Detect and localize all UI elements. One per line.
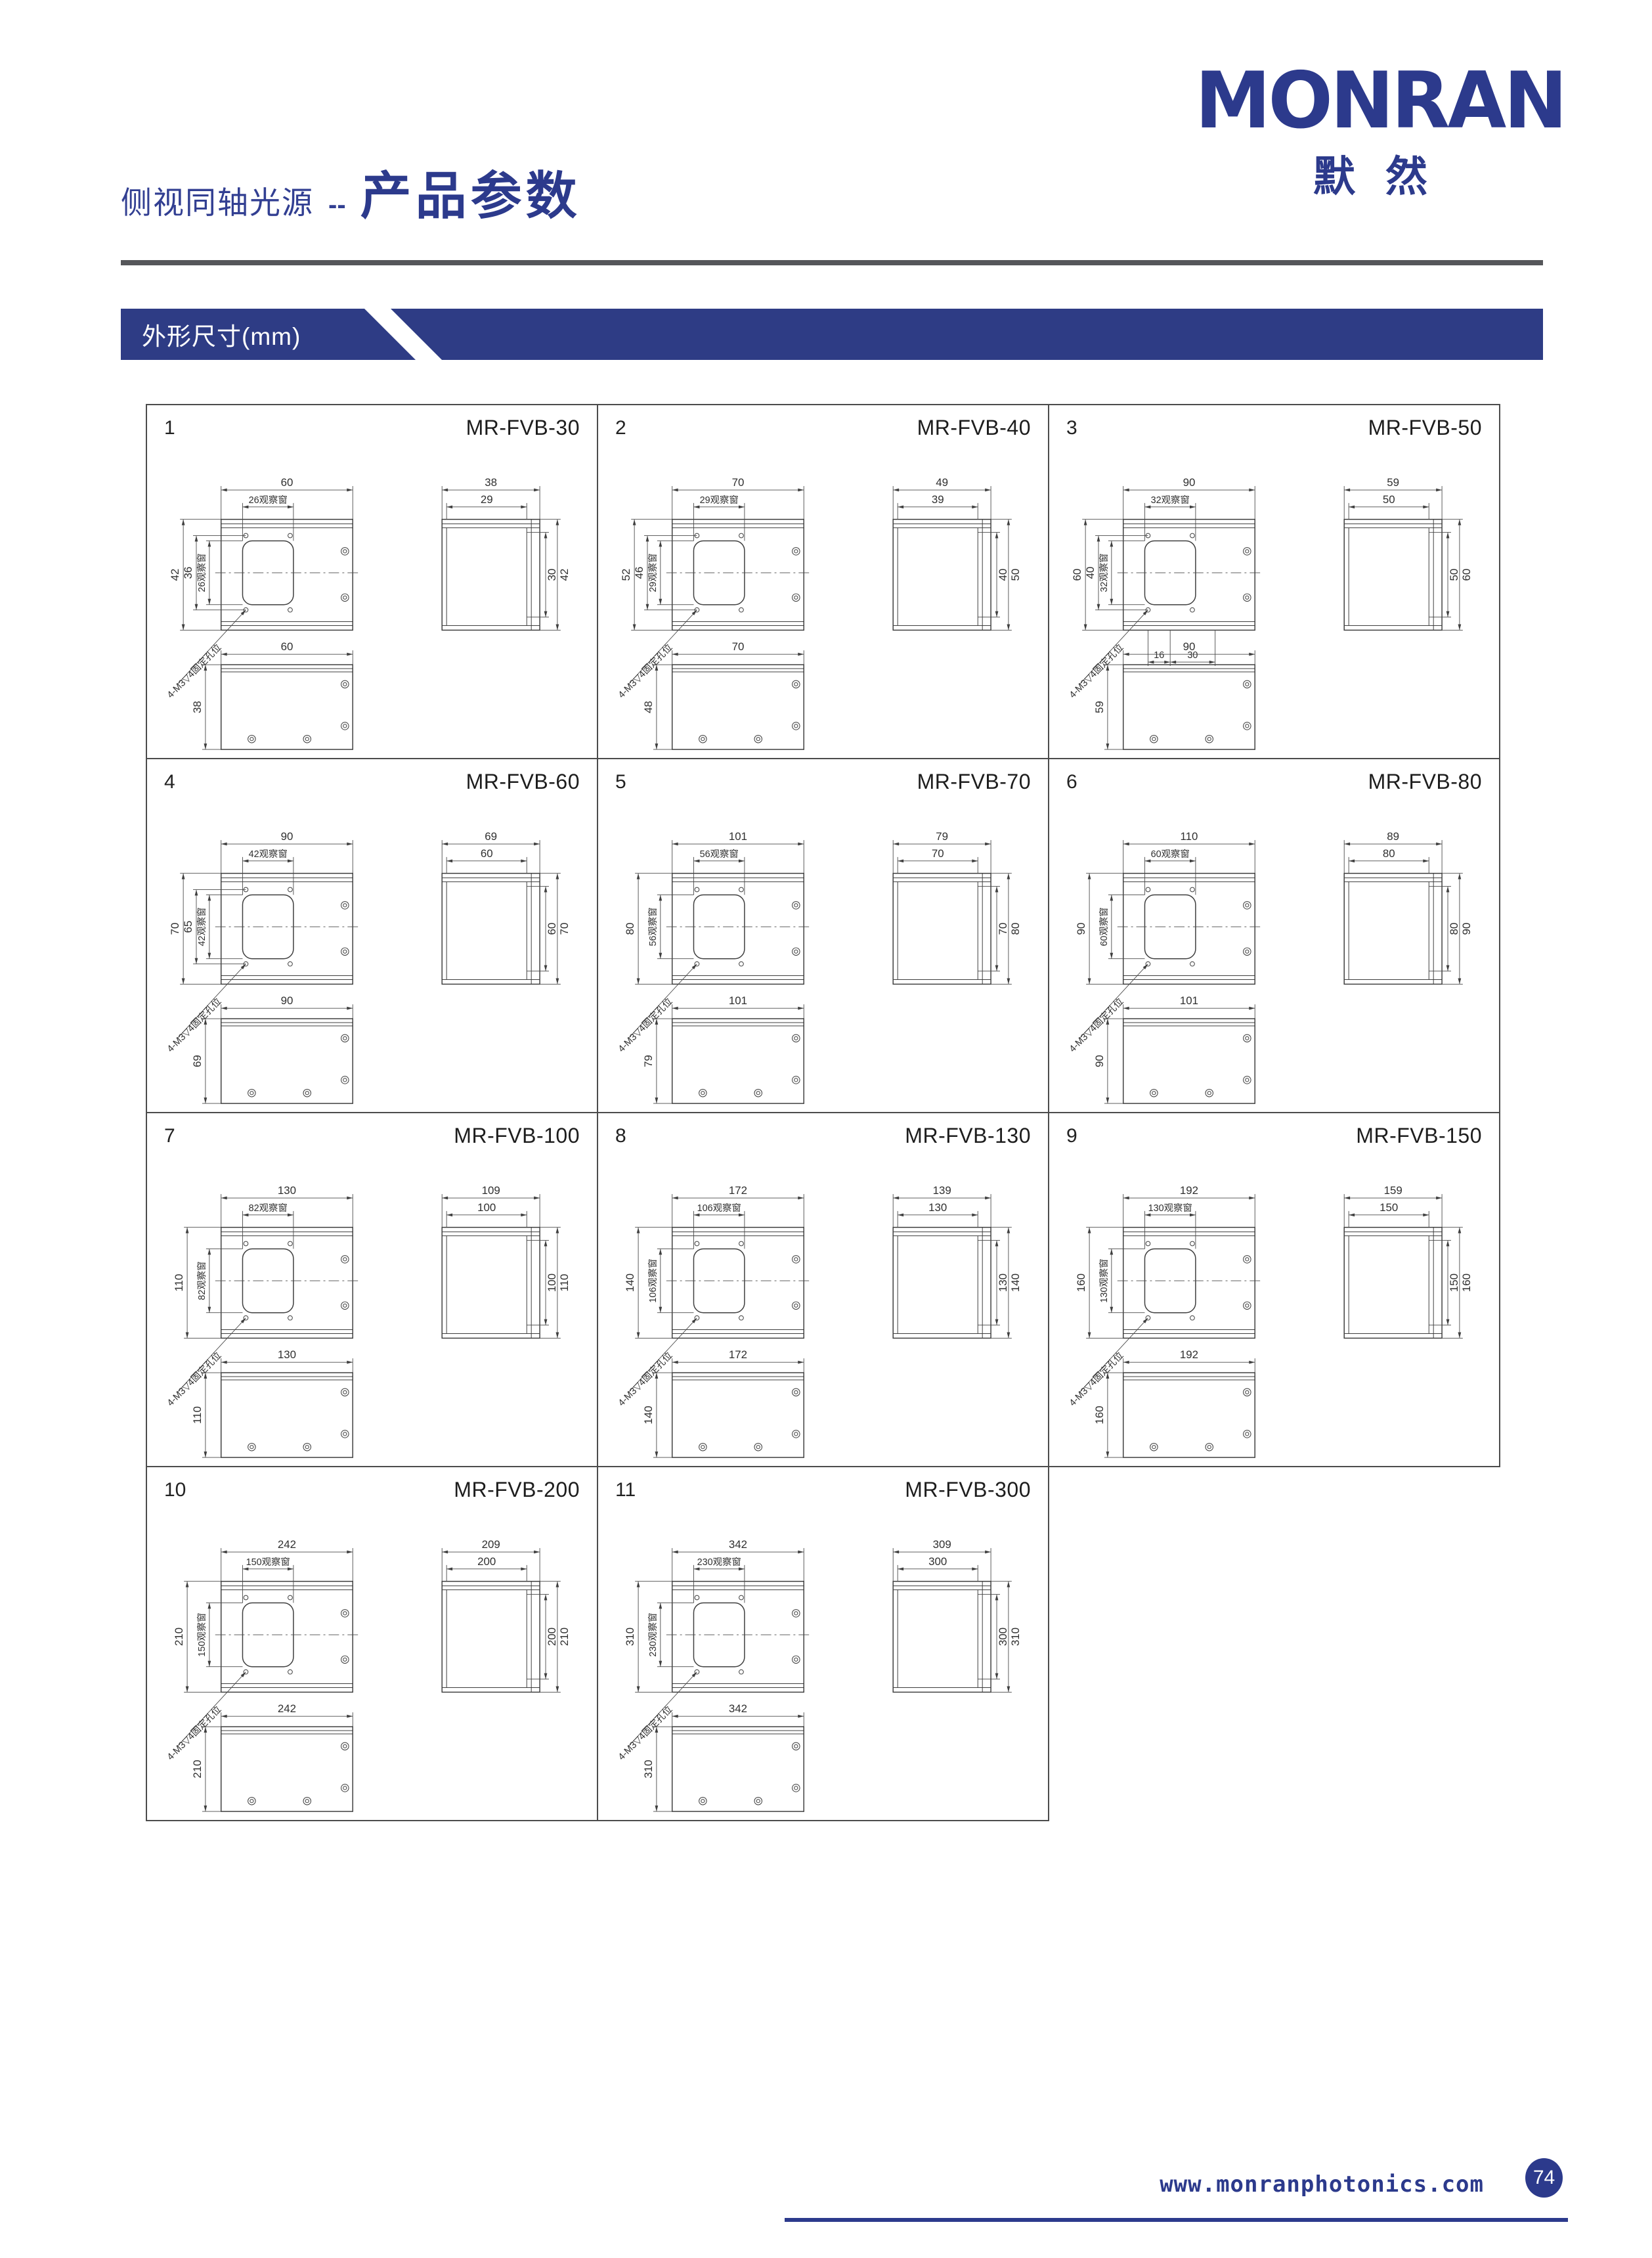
svg-text:100: 100 — [546, 1273, 558, 1292]
svg-text:29观察窗: 29观察窗 — [647, 554, 659, 592]
svg-text:90: 90 — [281, 994, 293, 1007]
svg-text:50: 50 — [1009, 569, 1022, 581]
svg-text:140: 140 — [1009, 1273, 1022, 1292]
svg-text:46: 46 — [633, 567, 645, 579]
svg-text:70: 70 — [732, 476, 745, 489]
svg-text:82观察窗: 82观察窗 — [249, 1202, 288, 1214]
svg-text:160: 160 — [1075, 1273, 1087, 1292]
svg-text:60: 60 — [281, 640, 293, 653]
svg-text:42观察窗: 42观察窗 — [249, 848, 288, 860]
svg-text:48: 48 — [642, 701, 655, 713]
svg-text:106观察窗: 106观察窗 — [647, 1259, 659, 1303]
svg-text:150: 150 — [1380, 1201, 1398, 1214]
drawing-cell-MR-FVB-70: 5MR-FVB-7010156观察窗8056观察窗4-M3▽4固定孔位79707… — [597, 758, 1049, 1113]
svg-text:242: 242 — [278, 1538, 296, 1551]
svg-text:56观察窗: 56观察窗 — [700, 848, 739, 860]
svg-text:90: 90 — [1183, 476, 1196, 489]
svg-text:130: 130 — [278, 1184, 296, 1197]
drawing-cell-MR-FVB-30: 1MR-FVB-306026观察窗423626观察窗4-M3▽4固定孔位3829… — [146, 404, 598, 759]
dimension-drawing: 172106观察窗140106观察窗4-M3▽4固定孔位139130130140… — [598, 1113, 1048, 1466]
svg-text:106观察窗: 106观察窗 — [697, 1202, 741, 1214]
svg-text:139: 139 — [933, 1184, 951, 1197]
svg-text:4-M3▽4固定孔位: 4-M3▽4固定孔位 — [1067, 642, 1125, 700]
svg-text:4-M3▽4固定孔位: 4-M3▽4固定孔位 — [616, 642, 674, 700]
svg-text:172: 172 — [729, 1348, 747, 1361]
svg-text:160: 160 — [1093, 1406, 1106, 1425]
svg-text:70: 70 — [932, 847, 944, 860]
dimension-drawing: 192130观察窗160130观察窗4-M3▽4固定孔位159150150160… — [1049, 1113, 1499, 1466]
header-divider — [121, 260, 1543, 265]
svg-text:38: 38 — [485, 476, 497, 489]
svg-text:101: 101 — [729, 994, 747, 1007]
svg-text:101: 101 — [1180, 994, 1198, 1007]
drawing-cell-MR-FVB-200: 10MR-FVB-200242150观察窗210150观察窗4-M3▽4固定孔位… — [146, 1466, 598, 1821]
svg-text:16: 16 — [1154, 650, 1164, 661]
svg-text:29观察窗: 29观察窗 — [700, 494, 739, 506]
svg-text:110: 110 — [558, 1274, 571, 1292]
svg-text:150: 150 — [1448, 1273, 1460, 1292]
svg-text:4-M3▽4固定孔位: 4-M3▽4固定孔位 — [165, 1704, 223, 1762]
svg-text:310: 310 — [624, 1627, 636, 1646]
svg-text:42: 42 — [558, 569, 571, 581]
svg-text:342: 342 — [729, 1538, 747, 1551]
svg-text:110: 110 — [173, 1274, 185, 1292]
svg-text:60: 60 — [1460, 569, 1473, 581]
svg-text:159: 159 — [1384, 1184, 1402, 1197]
svg-text:32观察窗: 32观察窗 — [1098, 554, 1110, 592]
section-banner: 外形尺寸(mm) — [121, 309, 1543, 360]
drawing-cell-MR-FVB-300: 11MR-FVB-300342230观察窗310230观察窗4-M3▽4固定孔位… — [597, 1466, 1049, 1821]
svg-text:110: 110 — [1181, 830, 1198, 843]
svg-text:89: 89 — [1387, 830, 1399, 843]
svg-text:230观察窗: 230观察窗 — [697, 1556, 741, 1568]
drawing-cell-MR-FVB-80: 6MR-FVB-8011060观察窗9060观察窗4-M3▽4固定孔位89808… — [1048, 758, 1500, 1113]
dimension-drawing: 6026观察窗423626观察窗4-M3▽4固定孔位382930426038 — [147, 405, 597, 758]
svg-text:60: 60 — [281, 476, 293, 489]
svg-text:150观察窗: 150观察窗 — [246, 1556, 290, 1568]
svg-text:60: 60 — [481, 847, 493, 860]
svg-text:130观察窗: 130观察窗 — [1098, 1259, 1110, 1303]
svg-text:60: 60 — [1071, 569, 1083, 581]
svg-text:65: 65 — [182, 921, 194, 933]
brand-logo: MONRAN 默然 — [1195, 63, 1550, 204]
svg-text:90: 90 — [1460, 923, 1473, 935]
svg-text:192: 192 — [1180, 1348, 1198, 1361]
svg-text:59: 59 — [1093, 701, 1106, 713]
svg-text:70: 70 — [558, 923, 571, 935]
svg-text:210: 210 — [191, 1760, 204, 1779]
svg-text:4-M3▽4固定孔位: 4-M3▽4固定孔位 — [165, 642, 223, 700]
brand-wordmark: MONRAN — [1195, 62, 1550, 140]
svg-text:80: 80 — [1009, 923, 1022, 935]
svg-text:310: 310 — [642, 1760, 655, 1779]
section-banner-label: 外形尺寸(mm) — [142, 309, 301, 360]
title-separator: -- — [328, 190, 346, 220]
svg-text:4-M3▽4固定孔位: 4-M3▽4固定孔位 — [1067, 1350, 1125, 1408]
svg-text:4-M3▽4固定孔位: 4-M3▽4固定孔位 — [616, 1350, 674, 1408]
svg-text:90: 90 — [1075, 923, 1087, 935]
footer-website: www.monranphotonics.com — [985, 2171, 1484, 2198]
svg-text:209: 209 — [482, 1538, 500, 1551]
svg-text:38: 38 — [191, 701, 204, 713]
svg-text:110: 110 — [191, 1406, 204, 1424]
svg-text:50: 50 — [1448, 569, 1460, 581]
svg-text:150观察窗: 150观察窗 — [196, 1613, 207, 1657]
svg-text:100: 100 — [477, 1201, 496, 1214]
svg-text:36: 36 — [182, 567, 194, 579]
svg-text:140: 140 — [642, 1406, 655, 1425]
svg-text:50: 50 — [1383, 493, 1395, 506]
svg-text:90: 90 — [1183, 640, 1196, 653]
svg-text:26观察窗: 26观察窗 — [196, 554, 207, 592]
svg-text:4-M3▽4固定孔位: 4-M3▽4固定孔位 — [165, 996, 223, 1054]
svg-text:309: 309 — [933, 1538, 951, 1551]
svg-text:192: 192 — [1180, 1184, 1198, 1197]
svg-text:59: 59 — [1387, 476, 1399, 489]
svg-text:26观察窗: 26观察窗 — [249, 494, 288, 506]
svg-text:130观察窗: 130观察窗 — [1148, 1202, 1192, 1214]
svg-text:49: 49 — [936, 476, 948, 489]
drawing-cell-MR-FVB-130: 8MR-FVB-130172106观察窗140106观察窗4-M3▽4固定孔位1… — [597, 1112, 1049, 1467]
svg-text:52: 52 — [620, 569, 632, 581]
svg-text:80: 80 — [1383, 847, 1395, 860]
svg-text:230观察窗: 230观察窗 — [647, 1613, 659, 1657]
svg-text:90: 90 — [1093, 1055, 1106, 1067]
svg-text:140: 140 — [624, 1273, 636, 1292]
svg-text:4-M3▽4固定孔位: 4-M3▽4固定孔位 — [165, 1350, 223, 1408]
svg-text:69: 69 — [485, 830, 497, 843]
page-title-main: 产品参数 — [360, 155, 581, 229]
svg-text:70: 70 — [997, 923, 1009, 935]
svg-text:342: 342 — [729, 1702, 747, 1715]
svg-text:80: 80 — [1448, 923, 1460, 935]
page-number: 74 — [1533, 2167, 1555, 2189]
svg-text:56观察窗: 56观察窗 — [647, 908, 659, 946]
svg-text:4-M3▽4固定孔位: 4-M3▽4固定孔位 — [1067, 996, 1125, 1054]
svg-text:69: 69 — [191, 1055, 204, 1067]
svg-text:80: 80 — [624, 923, 636, 935]
svg-text:60观察窗: 60观察窗 — [1098, 908, 1110, 946]
dimension-drawing: 10156观察窗8056观察窗4-M3▽4固定孔位7970708010179 — [598, 759, 1048, 1112]
dimension-drawing: 9042观察窗706542观察窗4-M3▽4固定孔位696060709069 — [147, 759, 597, 1112]
svg-text:210: 210 — [558, 1627, 571, 1646]
svg-text:4-M3▽4固定孔位: 4-M3▽4固定孔位 — [616, 996, 674, 1054]
svg-text:42: 42 — [169, 569, 181, 581]
product-category: 侧视同轴光源 — [121, 177, 314, 223]
svg-text:32观察窗: 32观察窗 — [1151, 494, 1190, 506]
svg-text:40: 40 — [997, 569, 1009, 581]
svg-text:210: 210 — [173, 1627, 185, 1646]
page-number-badge: 74 — [1525, 2158, 1563, 2198]
svg-text:29: 29 — [481, 493, 493, 506]
svg-text:101: 101 — [729, 830, 747, 843]
dimension-drawing: 13082观察窗11082观察窗4-M3▽4固定孔位10910010011013… — [147, 1113, 597, 1466]
svg-text:160: 160 — [1460, 1273, 1473, 1292]
svg-text:30: 30 — [546, 569, 558, 581]
page-title: 侧视同轴光源 -- 产品参数 — [121, 155, 581, 229]
svg-text:42观察窗: 42观察窗 — [196, 908, 207, 946]
dimension-drawing: 11060观察窗9060观察窗4-M3▽4固定孔位8980809010190 — [1049, 759, 1499, 1112]
svg-text:39: 39 — [932, 493, 944, 506]
drawing-cell-MR-FVB-50: 3MR-FVB-509032观察窗604032观察窗4-M3▽4固定孔位1630… — [1048, 404, 1500, 759]
footer-divider — [785, 2218, 1568, 2222]
svg-text:310: 310 — [1009, 1627, 1022, 1646]
drawing-cell-MR-FVB-40: 2MR-FVB-407029观察窗524629观察窗4-M3▽4固定孔位4939… — [597, 404, 1049, 759]
brand-chinese-name: 默然 — [1195, 143, 1550, 204]
svg-text:300: 300 — [928, 1555, 947, 1568]
dimension-drawing: 7029观察窗524629观察窗4-M3▽4固定孔位493940507048 — [598, 405, 1048, 758]
svg-text:109: 109 — [482, 1184, 500, 1197]
svg-text:172: 172 — [729, 1184, 747, 1197]
svg-text:130: 130 — [928, 1201, 947, 1214]
drawing-cell-MR-FVB-100: 7MR-FVB-10013082观察窗11082观察窗4-M3▽4固定孔位109… — [146, 1112, 598, 1467]
svg-text:40: 40 — [1084, 567, 1097, 579]
svg-text:90: 90 — [281, 830, 293, 843]
svg-text:60: 60 — [546, 923, 558, 935]
dimension-drawing: 9032观察窗604032观察窗4-M3▽4固定孔位16305950506090… — [1049, 405, 1499, 758]
svg-text:79: 79 — [642, 1055, 655, 1067]
svg-text:82观察窗: 82观察窗 — [196, 1262, 207, 1300]
svg-text:70: 70 — [732, 640, 745, 653]
drawing-cell-MR-FVB-60: 4MR-FVB-609042观察窗706542观察窗4-M3▽4固定孔位6960… — [146, 758, 598, 1113]
svg-text:130: 130 — [997, 1273, 1009, 1292]
dimension-drawing: 242150观察窗210150观察窗4-M3▽4固定孔位209200200210… — [147, 1467, 597, 1820]
dimension-drawing: 342230观察窗310230观察窗4-M3▽4固定孔位309300300310… — [598, 1467, 1048, 1820]
svg-text:130: 130 — [278, 1348, 296, 1361]
svg-text:200: 200 — [477, 1555, 496, 1568]
svg-text:70: 70 — [169, 923, 181, 935]
banner-slash-decoration — [358, 302, 448, 366]
svg-text:60观察窗: 60观察窗 — [1151, 848, 1190, 860]
svg-text:200: 200 — [546, 1627, 558, 1646]
svg-text:79: 79 — [936, 830, 948, 843]
drawing-cell-MR-FVB-150: 9MR-FVB-150192130观察窗160130观察窗4-M3▽4固定孔位1… — [1048, 1112, 1500, 1467]
svg-text:242: 242 — [278, 1702, 296, 1715]
svg-text:300: 300 — [997, 1627, 1009, 1646]
svg-text:4-M3▽4固定孔位: 4-M3▽4固定孔位 — [616, 1704, 674, 1762]
